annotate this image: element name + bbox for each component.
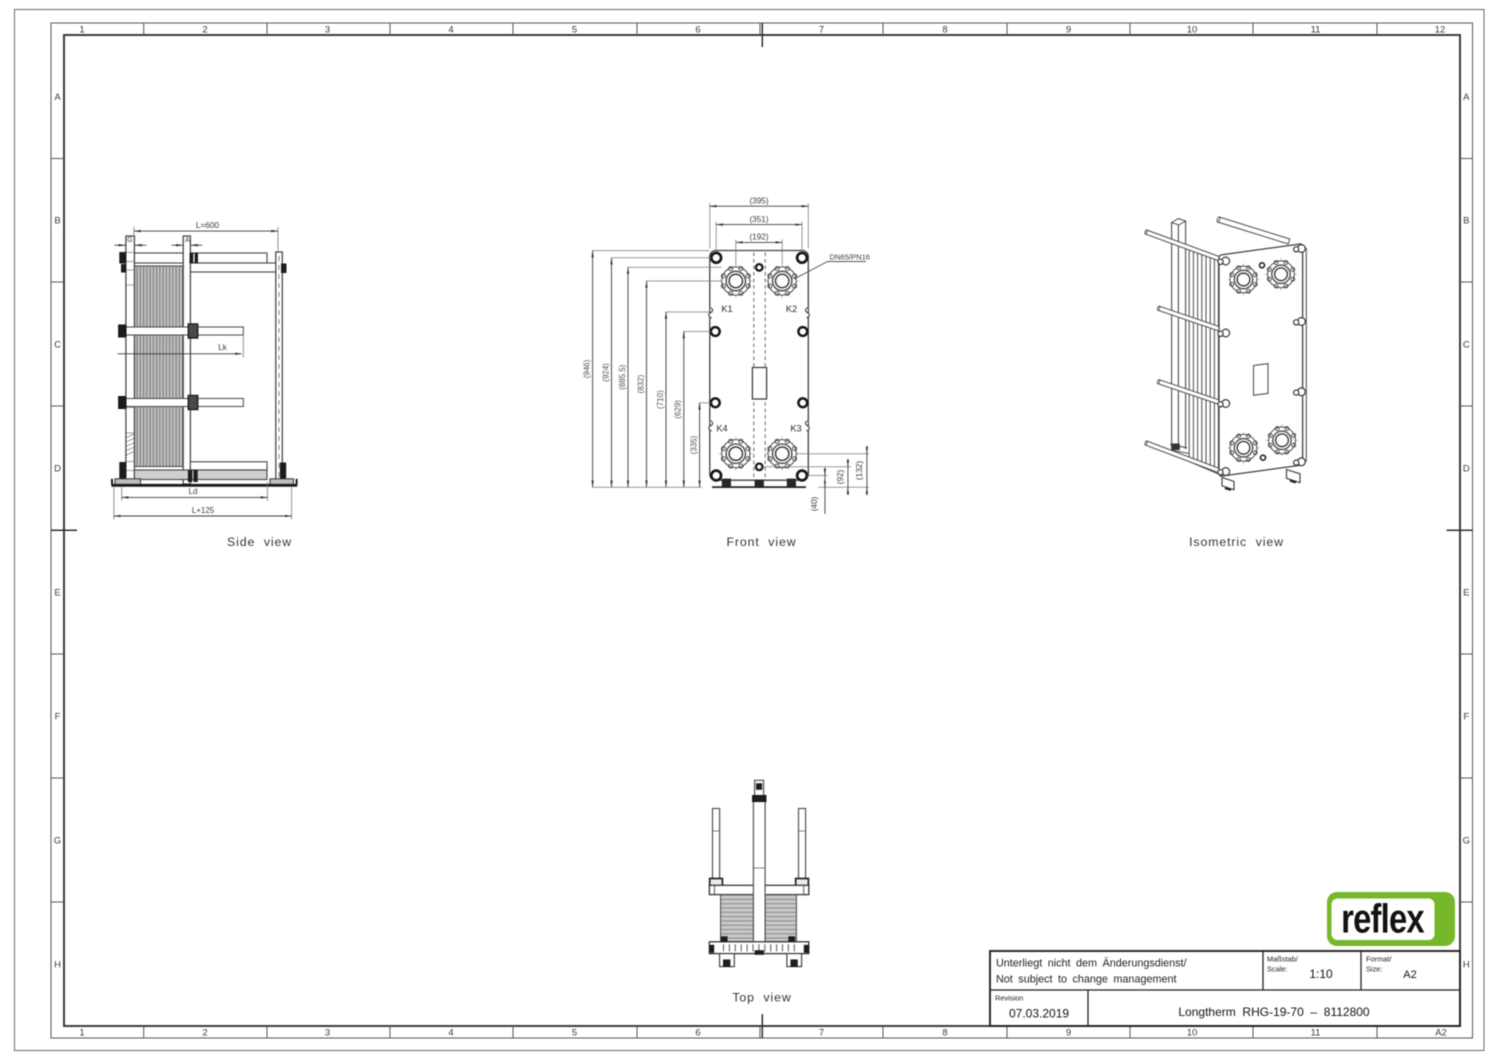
svg-text:G: G [54,835,61,846]
svg-text:2: 2 [202,1028,207,1039]
svg-text:(946): (946) [582,359,591,378]
svg-text:4: 4 [448,25,453,36]
svg-text:Format/: Format/ [1366,955,1392,964]
svg-text:12: 12 [1435,25,1446,36]
svg-text:G: G [1463,835,1470,846]
svg-text:B: B [54,215,60,226]
svg-text:(132): (132) [855,461,864,480]
svg-text:(832): (832) [636,374,645,393]
svg-text:C: C [1463,339,1470,350]
svg-text:1: 1 [79,25,84,36]
svg-text:Isometric view: Isometric view [1189,535,1284,549]
svg-text:L=600: L=600 [196,220,220,230]
svg-text:D: D [54,463,61,474]
svg-text:6: 6 [695,25,700,36]
svg-text:(92): (92) [836,469,845,484]
svg-text:5: 5 [572,1028,577,1039]
svg-text:9: 9 [1066,25,1071,36]
svg-text:F: F [55,711,61,722]
svg-text:(710): (710) [656,390,665,409]
svg-text:Top view: Top view [732,991,791,1005]
svg-text:Lk: Lk [218,343,227,352]
svg-text:DN65/PN16: DN65/PN16 [830,252,871,261]
svg-text:7: 7 [819,1028,824,1039]
svg-text:Side view: Side view [227,535,292,549]
svg-text:(40): (40) [810,496,819,511]
svg-text:11: 11 [1311,25,1321,36]
svg-text:6: 6 [695,1028,700,1039]
svg-text:A2: A2 [1403,969,1416,981]
svg-text:L+125: L+125 [192,506,215,515]
svg-text:C: C [54,339,61,350]
svg-text:A: A [1463,92,1470,103]
svg-text:K1: K1 [721,304,732,314]
svg-text:reflex: reflex [1341,895,1425,941]
svg-text:7: 7 [819,25,824,36]
svg-text:K4: K4 [716,424,727,434]
svg-text:K2: K2 [786,304,797,314]
svg-text:Scale:: Scale: [1267,965,1288,974]
svg-text:A2: A2 [1435,1028,1447,1039]
svg-text:8: 8 [942,1028,947,1039]
svg-text:Size:: Size: [1366,965,1382,974]
svg-text:D: D [1463,463,1470,474]
svg-text:F: F [1463,711,1469,722]
svg-text:E: E [1463,587,1469,598]
svg-text:(629): (629) [674,400,683,419]
svg-text:A: A [54,92,61,103]
svg-text:10: 10 [1187,1028,1198,1039]
svg-text:(924): (924) [601,363,610,382]
svg-text:11: 11 [1311,1028,1321,1039]
svg-text:2: 2 [202,25,207,36]
svg-text:3: 3 [325,1028,330,1039]
svg-text:Revision: Revision [995,994,1023,1003]
svg-text:H: H [54,959,61,970]
svg-text:Ld: Ld [189,487,198,496]
svg-text:5: 5 [572,25,577,36]
svg-text:(395): (395) [749,196,768,205]
svg-text:1:10: 1:10 [1309,967,1333,981]
svg-text:1: 1 [79,1028,84,1039]
svg-text:Front view: Front view [726,535,796,549]
svg-text:G: G [127,237,132,244]
svg-text:Longtherm RHG-19-70 – 81128: Longtherm RHG-19-70 – 8112800 [1178,1005,1370,1019]
svg-text:8: 8 [942,25,947,36]
svg-text:B: B [1463,215,1469,226]
svg-text:07.03.2019: 07.03.2019 [1009,1007,1069,1021]
svg-text:H: H [1463,959,1470,970]
svg-text:(351): (351) [749,215,768,224]
svg-text:9: 9 [1066,1028,1071,1039]
svg-text:10: 10 [1187,25,1198,36]
svg-text:4: 4 [448,1028,453,1039]
svg-text:Unterliegt nicht dem Änderungs: Unterliegt nicht dem Änderungsdienst/ [996,958,1187,970]
svg-text:Not subject to change manageme: Not subject to change management [996,974,1176,986]
svg-text:E: E [54,587,60,598]
svg-text:(192): (192) [749,233,768,242]
svg-text:(335): (335) [689,435,698,454]
svg-text:Maßstab/: Maßstab/ [1267,955,1299,964]
svg-text:A: A [185,237,190,244]
svg-text:(885.5): (885.5) [618,364,627,390]
svg-text:K3: K3 [790,424,801,434]
svg-text:3: 3 [325,25,330,36]
